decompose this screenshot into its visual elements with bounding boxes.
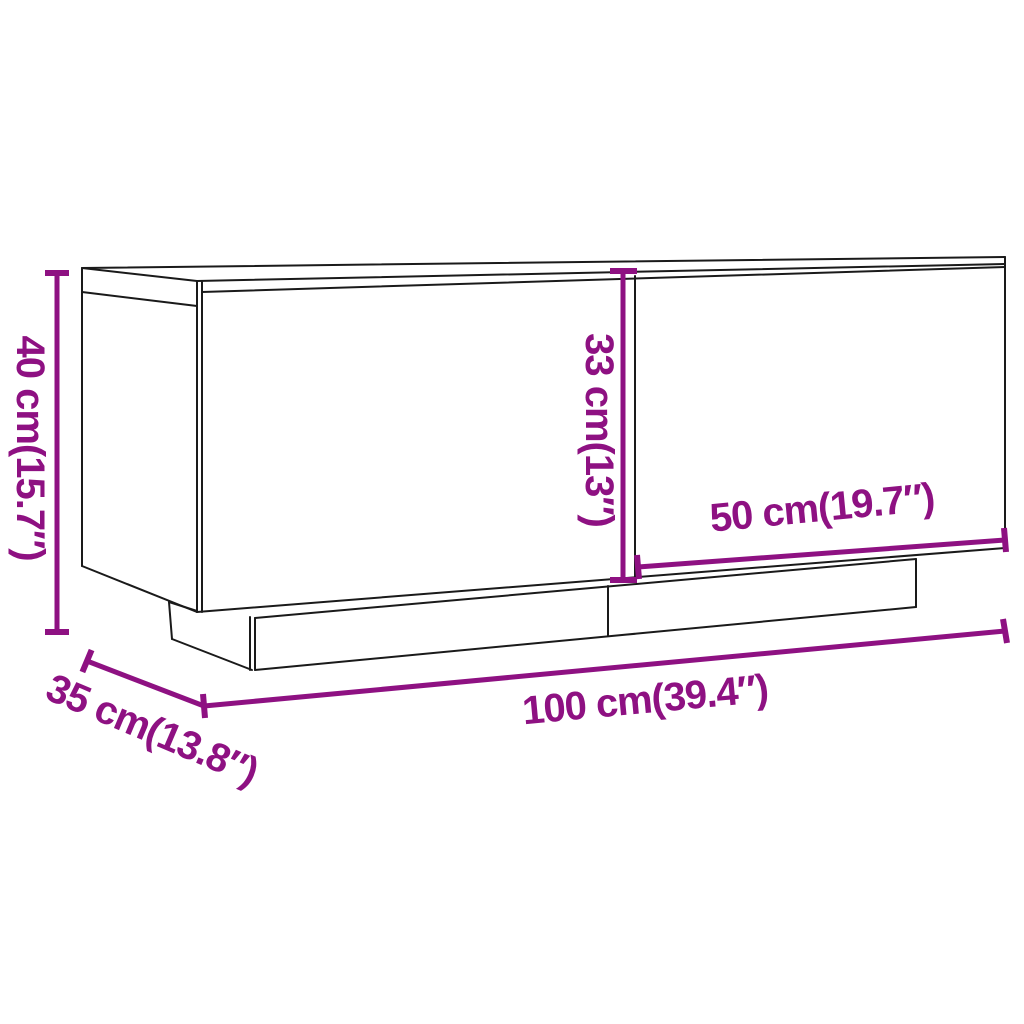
cabinet-drawing [82, 257, 1005, 670]
door-height-dimension-label: 33 cm(13″) [577, 333, 621, 527]
height-dimension: 40 cm(15.7″) [8, 273, 69, 632]
door-height-dimension: 33 cm(13″) [577, 271, 637, 580]
height-dimension-label: 40 cm(15.7″) [8, 335, 52, 560]
plinth-left-edge [169, 602, 172, 639]
cabinet-front-top-band [202, 267, 1005, 292]
dimension-diagram: 40 cm(15.7″) 33 cm(13″) 50 cm(19.7″) 1 [0, 0, 1024, 1024]
plinth-bottom-edge [255, 607, 916, 670]
cabinet-top-front-edge [197, 264, 1005, 281]
plinth-left-bottom-edge [172, 639, 252, 670]
depth-width-corner-tick [203, 694, 205, 718]
plinth-top-edge [255, 559, 916, 618]
plinth-left-top-edge [169, 602, 197, 611]
door-width-tick-right [1004, 528, 1006, 552]
door-width-dimension-label: 50 cm(19.7″) [708, 475, 936, 540]
door-width-tick-left [637, 555, 639, 579]
dimension-annotations: 40 cm(15.7″) 33 cm(13″) 50 cm(19.7″) 1 [8, 271, 1007, 794]
width-dimension-label: 100 cm(39.4″) [520, 667, 769, 734]
cabinet-top-left-edge [82, 268, 197, 281]
cabinet-front-bottom-edge [197, 548, 1005, 612]
cabinet-side-top-band [82, 292, 197, 306]
width-tick-right [1003, 619, 1007, 643]
diagram-canvas: 40 cm(15.7″) 33 cm(13″) 50 cm(19.7″) 1 [0, 0, 1024, 1024]
depth-dimension: 35 cm(13.8″) [40, 650, 264, 794]
depth-tick-top [82, 650, 91, 672]
